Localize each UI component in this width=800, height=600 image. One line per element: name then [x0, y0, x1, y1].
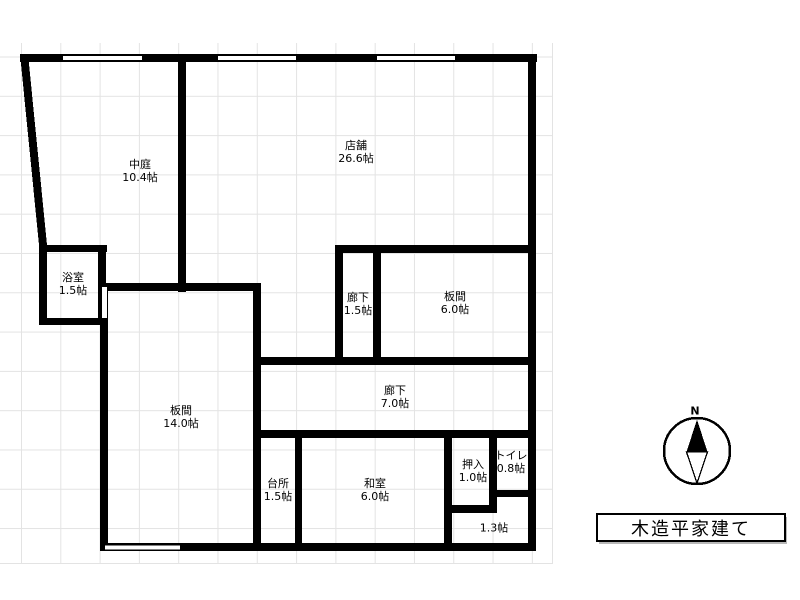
room-name: トイレ	[495, 449, 528, 462]
window-top-2	[218, 56, 296, 60]
floor-plan-canvas: 中庭 10.4帖 店舗 26.6帖 浴室 1.5帖 廊下 1.5帖 板間 6.0…	[0, 0, 800, 600]
room-size: 6.0帖	[361, 490, 390, 503]
wall-hallway1-right	[373, 245, 381, 365]
room-size: 14.0帖	[163, 417, 199, 430]
wall-west-room-right	[253, 284, 261, 551]
floor-plan-drawing	[0, 0, 800, 600]
room-size: 1.0帖	[459, 471, 488, 484]
room-name: 店舗	[338, 139, 374, 152]
room-label-bathroom: 浴室 1.5帖	[59, 271, 88, 297]
room-size: 1.5帖	[264, 490, 293, 503]
wall-hallway2-bottom	[253, 430, 536, 438]
wall-courtyard-shop-divider	[178, 54, 186, 292]
room-size: 0.8帖	[495, 462, 528, 475]
room-label-wood-floor-room-2: 板間 14.0帖	[163, 404, 199, 430]
room-size: 1.5帖	[59, 284, 88, 297]
room-name: 板間	[441, 290, 470, 303]
room-name: 押入	[459, 458, 488, 471]
room-name: 和室	[361, 477, 390, 490]
room-size: 26.6帖	[338, 152, 374, 165]
window-top-3	[377, 56, 455, 60]
compass-north-label: N	[690, 405, 699, 418]
room-label-kitchen: 台所 1.5帖	[264, 477, 293, 503]
wall-outer-right	[528, 54, 536, 551]
wall-kitchen-right	[295, 438, 302, 551]
wall-courtyard-bottom	[100, 283, 261, 291]
room-size: 10.4帖	[122, 171, 158, 184]
room-label-hallway-1: 廊下 1.5帖	[344, 291, 373, 317]
room-name: 板間	[163, 404, 199, 417]
building-type-caption: 木造平家建て	[596, 513, 786, 542]
room-name: 浴室	[59, 271, 88, 284]
room-size: 6.0帖	[441, 303, 470, 316]
compass-icon	[664, 418, 730, 484]
wall-outer-left-slanted	[20, 54, 47, 245]
door-gap-west-room	[102, 287, 107, 318]
room-label-japanese-room: 和室 6.0帖	[361, 477, 390, 503]
building-type-text: 木造平家建て	[631, 515, 751, 541]
wall-bathroom-left	[39, 245, 47, 325]
room-label-courtyard: 中庭 10.4帖	[122, 158, 158, 184]
room-name: 廊下	[381, 384, 410, 397]
wall-bathroom-bottom	[39, 318, 107, 325]
room-size: 1.5帖	[344, 304, 373, 317]
wall-toilet-bottom	[489, 490, 536, 497]
wall-hallway1-left	[335, 245, 343, 365]
wall-hallway2-top	[253, 357, 536, 365]
window-top-1	[63, 56, 142, 60]
room-name: 中庭	[122, 158, 158, 171]
window-bottom	[105, 546, 180, 550]
room-name: 台所	[264, 477, 293, 490]
room-label-toilet: トイレ 0.8帖	[495, 449, 528, 475]
room-size: 7.0帖	[381, 397, 410, 410]
room-label-hallway-2: 廊下 7.0帖	[381, 384, 410, 410]
room-label-shop: 店舗 26.6帖	[338, 139, 374, 165]
room-name: 廊下	[344, 291, 373, 304]
room-label-wood-floor-room-1: 板間 6.0帖	[441, 290, 470, 316]
wall-west-room-left	[100, 283, 108, 551]
room-label-closet: 押入 1.0帖	[459, 458, 488, 484]
wall-shop-bottom	[335, 245, 536, 253]
room-size: 1.3帖	[480, 522, 509, 535]
room-label-storage: 1.3帖	[480, 522, 509, 535]
wall-japanese-room-right	[444, 438, 452, 551]
wall-bathroom-top	[39, 245, 107, 252]
